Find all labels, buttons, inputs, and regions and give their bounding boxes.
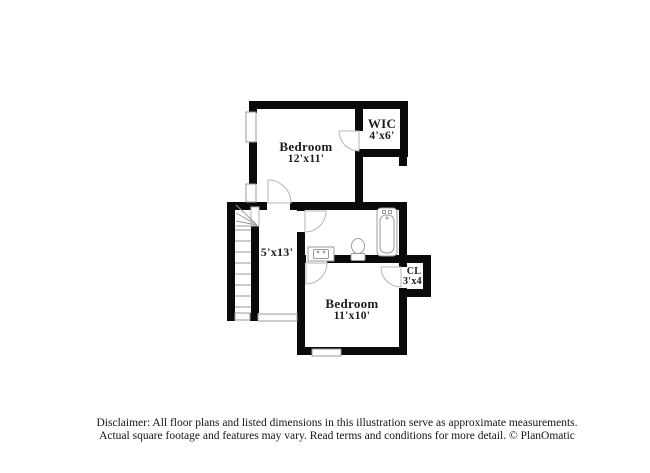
room-dimensions: 5'x13' <box>261 246 293 258</box>
disclaimer-text: Disclaimer: All floor plans and listed d… <box>24 417 650 443</box>
sink-vanity-icon <box>308 247 334 261</box>
room-label-hallway: 5'x13' <box>261 246 293 258</box>
window-icon <box>312 349 341 356</box>
room-name: WIC <box>368 118 396 130</box>
room-name: Bedroom <box>279 141 332 153</box>
toilet-icon <box>351 239 365 261</box>
room-label-closet: CL 3'x4' <box>403 267 425 287</box>
disclaimer-line-2: Actual square footage and features may v… <box>24 430 650 443</box>
window-icon <box>258 314 297 321</box>
door-arc-icon <box>381 267 401 287</box>
door-arc-icon <box>305 211 326 232</box>
room-dimensions: 4'x6' <box>368 130 396 142</box>
room-dimensions: 11'x10' <box>325 310 378 322</box>
room-label-bedroom-upper: Bedroom 12'x11' <box>279 141 332 165</box>
room-dimensions: 12'x11' <box>279 153 332 165</box>
floorplan-drawing <box>0 0 650 473</box>
room-label-bedroom-lower: Bedroom 11'x10' <box>325 298 378 322</box>
floorplan-page: Bedroom 12'x11' WIC 4'x6' 5'x13' Bedroom… <box>0 0 650 473</box>
door-arc-icon <box>339 131 359 151</box>
disclaimer-line-1: Disclaimer: All floor plans and listed d… <box>24 417 650 430</box>
bathtub-icon <box>377 208 397 256</box>
door-arc-icon <box>268 180 291 203</box>
room-label-wic: WIC 4'x6' <box>368 118 396 142</box>
window-icon <box>235 313 250 320</box>
window-icon <box>246 112 256 142</box>
window-icon <box>246 184 256 202</box>
door-arc-icon <box>306 263 327 284</box>
room-name: Bedroom <box>325 298 378 310</box>
room-dimensions: 3'x4' <box>403 277 425 287</box>
